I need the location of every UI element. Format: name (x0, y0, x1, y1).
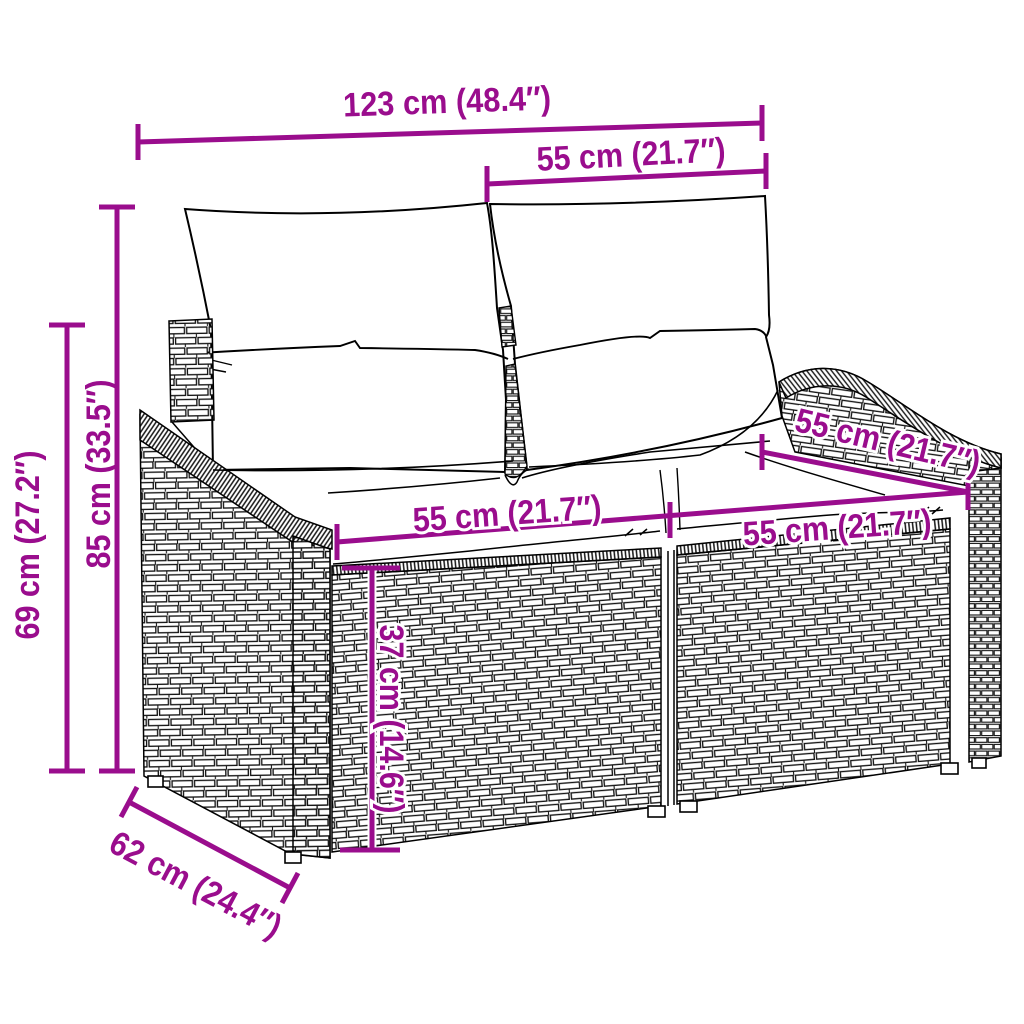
svg-text:85 cm (33.5″): 85 cm (33.5″) (80, 380, 118, 569)
svg-text:37 cm (14.6″): 37 cm (14.6″) (372, 625, 410, 814)
svg-text:69 cm (27.2″): 69 cm (27.2″) (9, 451, 47, 640)
svg-text:123 cm (48.4″): 123 cm (48.4″) (342, 79, 551, 124)
